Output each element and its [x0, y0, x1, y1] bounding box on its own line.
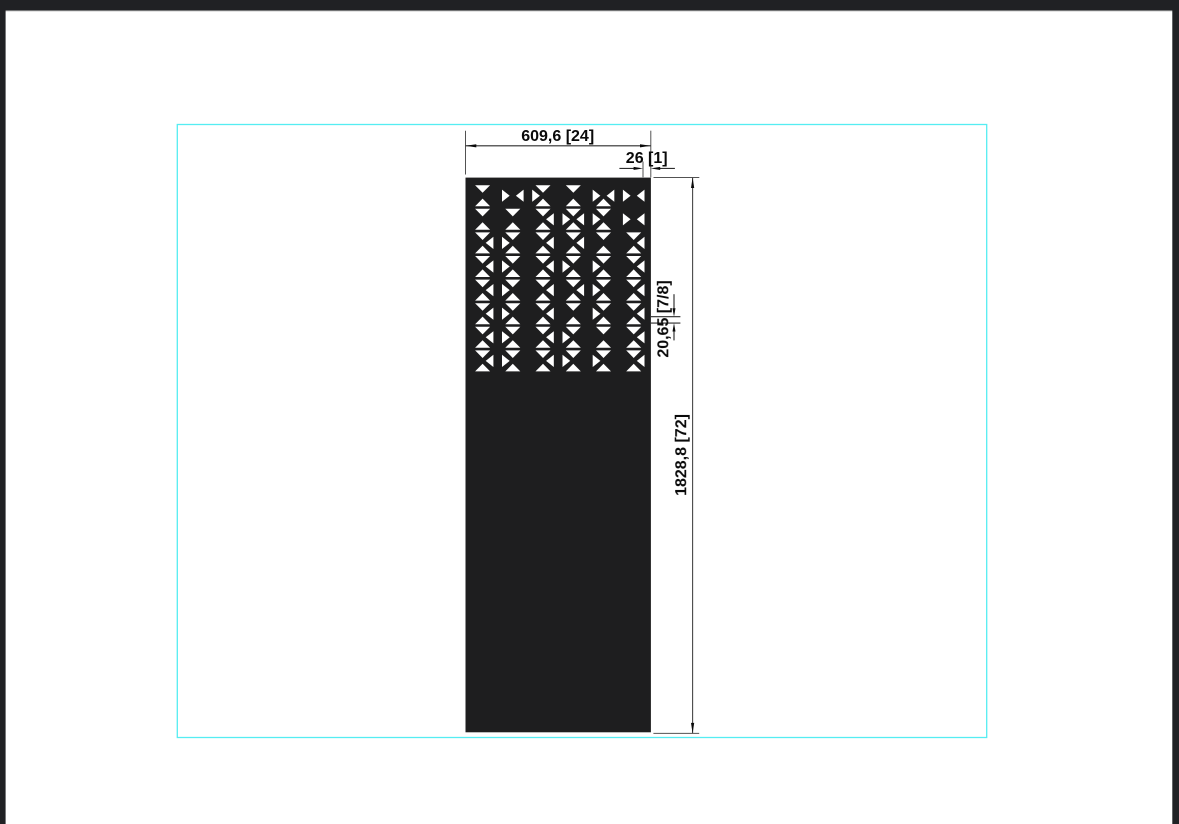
svg-text:20,65 [7/8]: 20,65 [7/8] [655, 280, 672, 357]
svg-text:1828,8 [72]: 1828,8 [72] [673, 414, 690, 496]
svg-text:26 [1]: 26 [1] [626, 150, 668, 167]
svg-text:609,6 [24]: 609,6 [24] [521, 128, 594, 145]
